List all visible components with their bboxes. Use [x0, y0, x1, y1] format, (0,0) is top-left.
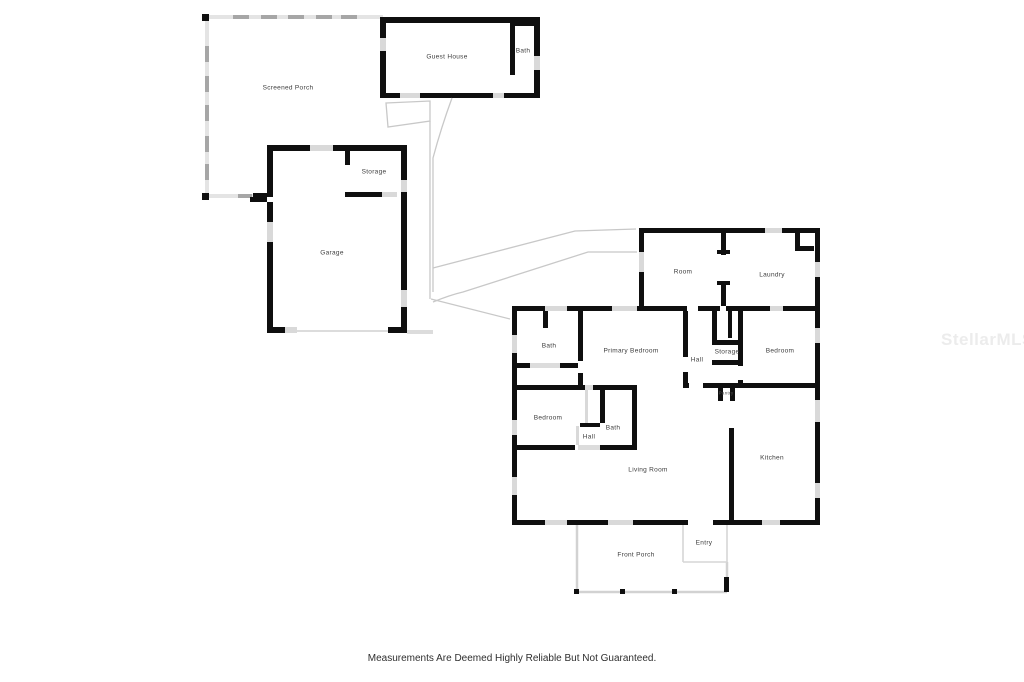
room-label-laundry: Laundry — [759, 272, 785, 279]
front-porch-walls — [574, 525, 729, 594]
watermark-stellar-mls: StellarMLS — [941, 330, 1024, 350]
room-label-bedroom-right: Bedroom — [766, 348, 794, 355]
room-label-entry: Entry — [696, 540, 713, 547]
measurement-disclaimer: Measurements Are Deemed Highly Reliable … — [0, 653, 1024, 664]
screened-porch-walls — [202, 14, 383, 200]
room-label-room: Room — [674, 269, 693, 276]
walkway-paths — [386, 98, 637, 334]
room-label-guest-house: Guest House — [426, 54, 467, 61]
room-label-screened-porch: Screened Porch — [263, 85, 314, 92]
room-label-garage: Garage — [320, 250, 343, 257]
room-label-hall: Hall — [691, 357, 703, 364]
room-label-front-porch: Front Porch — [617, 552, 654, 559]
room-label-bath-small: Bath — [606, 425, 621, 432]
room-label-kitchen: Kitchen — [760, 455, 784, 462]
room-label-living-room: Living Room — [628, 467, 667, 474]
room-label-primary-bath: Bath — [542, 343, 557, 350]
room-label-storage: Storage — [715, 349, 740, 356]
floor-plan-canvas: Screened Porch Guest House Bath Storage … — [0, 0, 1024, 682]
room-label-guest-bath: Bath — [516, 48, 531, 55]
room-label-bedroom-left: Bedroom — [534, 415, 562, 422]
room-label-garage-storage: Storage — [362, 169, 387, 176]
room-label-hall-small: Hall — [583, 434, 595, 441]
room-label-pantry: Pantry — [719, 391, 734, 396]
floor-plan-drawing — [0, 0, 1024, 682]
room-label-primary-bedroom: Primary Bedroom — [603, 348, 658, 355]
